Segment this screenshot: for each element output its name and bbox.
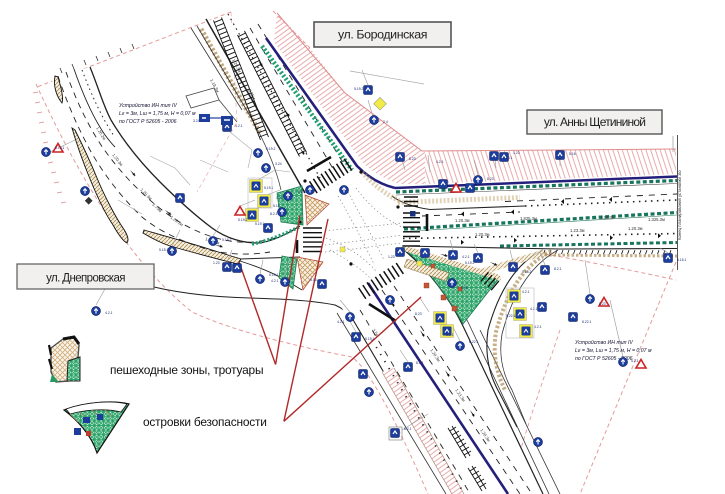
svg-text:8.22.1: 8.22.1 [506,314,516,318]
svg-text:1.20.3м: 1.20.3м [628,226,643,231]
svg-text:8.2.1: 8.2.1 [404,427,412,431]
svg-text:Lг = 3м, Lш = 1,75 м, Н = 0,07: Lг = 3м, Lш = 1,75 м, Н = 0,07 м [119,111,196,117]
svg-text:1.23: 1.23 [213,261,220,265]
svg-text:4.2.1: 4.2.1 [271,279,279,283]
svg-text:5.16: 5.16 [310,278,317,282]
svg-text:5.15.2: 5.15.2 [522,270,532,274]
svg-text:1.23: 1.23 [388,255,395,259]
svg-text:ул. Анны Щетининой: ул. Анны Щетининой [544,115,645,129]
svg-text:4.2.1: 4.2.1 [462,255,470,259]
svg-text:Lг = 3м, Lш = 1,75 м, Н = 0,07: Lг = 3м, Lш = 1,75 м, Н = 0,07 м [575,348,652,354]
svg-text:пешеходные зоны, тротуары: пешеходные зоны, тротуары [110,363,263,377]
svg-text:8.2.1: 8.2.1 [416,361,424,365]
svg-text:5.19.2: 5.19.2 [238,218,248,222]
svg-text:1.20.3м: 1.20.3м [600,215,615,220]
svg-text:5.19.1: 5.19.1 [255,222,265,226]
svg-text:1.23: 1.23 [513,151,520,155]
svg-text:8.23: 8.23 [409,157,416,161]
svg-text:5.19.2: 5.19.2 [266,147,276,151]
svg-text:8.23: 8.23 [415,312,422,316]
svg-text:5.15.1: 5.15.1 [677,258,687,262]
svg-text:1.20.3м: 1.20.3м [475,232,490,237]
svg-text:4.2.1: 4.2.1 [631,359,639,363]
svg-text:3.24: 3.24 [193,119,200,123]
svg-text:8.22.1: 8.22.1 [469,340,479,344]
svg-text:5.19.2: 5.19.2 [465,261,475,265]
svg-text:5.16: 5.16 [273,204,280,208]
svg-text:8.2.1: 8.2.1 [270,212,278,216]
svg-text:8.2.1: 8.2.1 [298,190,306,194]
svg-text:5.19.1: 5.19.1 [269,273,279,277]
svg-text:5.16: 5.16 [569,152,576,156]
svg-text:8.23: 8.23 [487,177,494,181]
svg-text:Устройство ИН тип IV: Устройство ИН тип IV [119,102,177,109]
svg-text:8.22.1: 8.22.1 [582,320,592,324]
svg-text:ул. Бородинская: ул. Бородинская [338,28,427,42]
svg-text:5.15.1: 5.15.1 [503,156,513,160]
svg-text:5.15.1: 5.15.1 [159,248,169,252]
svg-text:5.19.1: 5.19.1 [55,146,65,150]
svg-text:8.2.1: 8.2.1 [554,267,562,271]
svg-text:островки безопасности: островки безопасности [143,415,267,429]
svg-text:Устройство ИН тип IV: Устройство ИН тип IV [575,339,633,346]
svg-text:8.23: 8.23 [599,302,606,306]
svg-text:4.2.1: 4.2.1 [534,325,542,329]
svg-text:4.2.1: 4.2.1 [436,160,444,164]
svg-text:5.16: 5.16 [461,286,468,290]
svg-text:5.19.1: 5.19.1 [365,337,375,341]
svg-text:1.23.3м: 1.23.3м [570,228,585,233]
svg-text:1.23: 1.23 [276,196,283,200]
svg-text:5.15.2: 5.15.2 [222,238,232,242]
svg-text:5.19.2: 5.19.2 [354,87,364,91]
svg-text:4.2.1: 4.2.1 [337,320,345,324]
svg-text:2.4: 2.4 [383,120,388,124]
svg-text:1.20.3м: 1.20.3м [455,218,470,223]
svg-text:1.325.3м: 1.325.3м [648,217,665,222]
svg-text:4.2.1: 4.2.1 [235,124,243,128]
svg-text:3.24: 3.24 [275,162,282,166]
svg-text:ул. Днепровская: ул. Днепровская [46,273,125,285]
svg-text:8.2.1: 8.2.1 [446,333,454,337]
svg-text:4.2.1: 4.2.1 [522,290,530,294]
svg-text:1.825.3м: 1.825.3м [520,216,537,221]
svg-text:4.2.1: 4.2.1 [105,311,113,315]
svg-text:по ГОСТ Р 52605 - 2006: по ГОСТ Р 52605 - 2006 [119,119,177,125]
svg-text:Конец планирования установки з: Конец планирования установки з/о [677,170,682,240]
